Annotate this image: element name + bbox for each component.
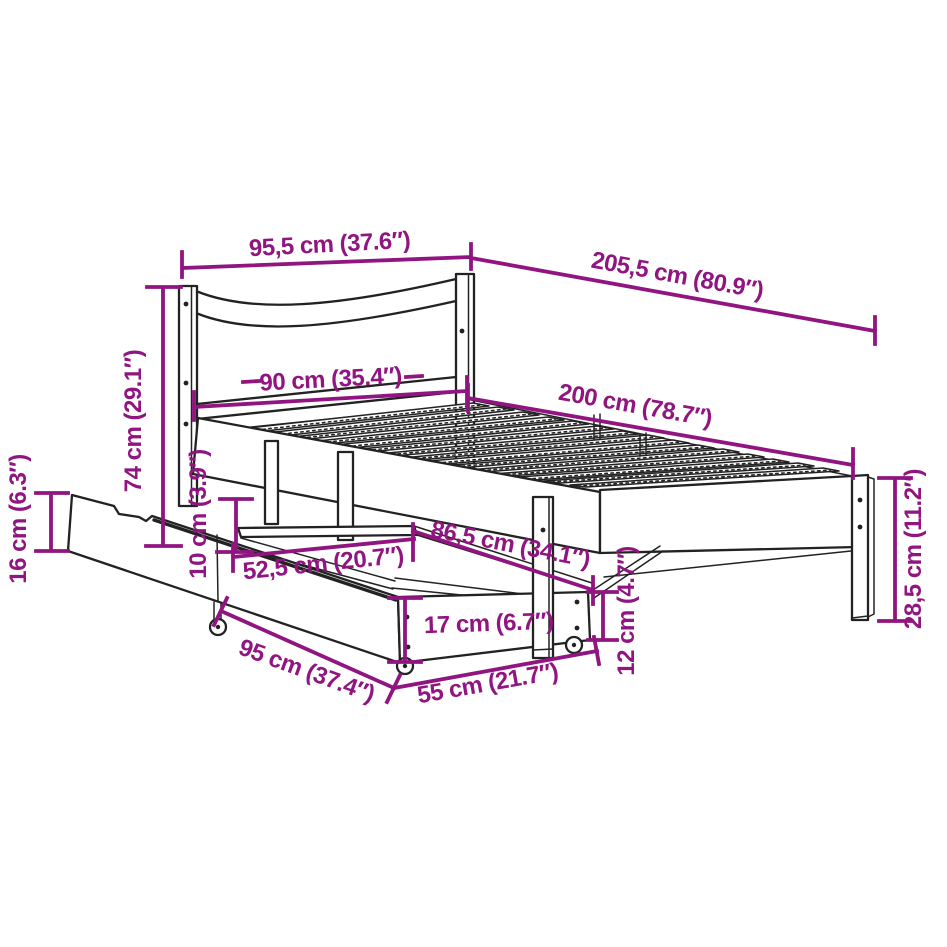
dimension-headboard-height: 74 cm (29.1″) — [120, 287, 181, 546]
dimension-line — [146, 287, 181, 546]
screw-dot — [460, 329, 465, 334]
dimension-label: 90 cm (35.4″) — [259, 362, 403, 396]
dimension-label: 12 cm (4.7″) — [613, 546, 640, 676]
dimension-label: 10 cm (3.9″) — [185, 449, 212, 579]
screw-dot — [541, 528, 546, 533]
headboard-curved-rail — [196, 279, 456, 326]
dimension-label: 74 cm (29.1″) — [120, 350, 147, 492]
foot-leg-far — [852, 475, 868, 620]
dimension-top-width: 95,5 cm (37.6″) — [182, 227, 471, 277]
drawer-rim-band — [238, 526, 417, 537]
footboard — [600, 476, 857, 553]
screw-dot — [575, 600, 580, 605]
screw-dot — [184, 302, 189, 307]
dimension-label: 17 cm (6.7″) — [424, 608, 554, 640]
drawer-panel-seam — [217, 535, 218, 601]
screw-dot — [858, 525, 863, 530]
dimension-label: 16 cm (6.3″) — [5, 454, 32, 584]
screw-dot — [858, 498, 863, 503]
dimension-drawer-left-height: 16 cm (6.3″) — [5, 454, 68, 584]
screw-dot — [184, 381, 189, 386]
dimension-leg-height: 28,5 cm (11.2″) — [879, 469, 927, 629]
dimension-label: 28,5 cm (11.2″) — [900, 469, 927, 629]
diagram-canvas: 95,5 cm (37.6″) 205,5 cm (80.9″) 90 cm (… — [0, 0, 947, 947]
dimension-line — [36, 493, 68, 551]
dimension-label: 95,5 cm (37.6″) — [248, 227, 411, 262]
dimension-overall-length: 205,5 cm (80.9″) — [471, 247, 875, 344]
screw-dot — [184, 422, 189, 427]
caster-hub — [216, 625, 220, 629]
caster-hub — [572, 643, 576, 647]
caster-hub — [403, 664, 407, 668]
screw-dot — [575, 626, 580, 631]
center-support-leg — [265, 441, 278, 524]
bed-underside-edge — [604, 551, 851, 577]
bed-frame-dimension-diagram: 95,5 cm (37.6″) 205,5 cm (80.9″) 90 cm (… — [0, 0, 947, 947]
dimension-label: 55 cm (21.7″) — [415, 658, 560, 709]
